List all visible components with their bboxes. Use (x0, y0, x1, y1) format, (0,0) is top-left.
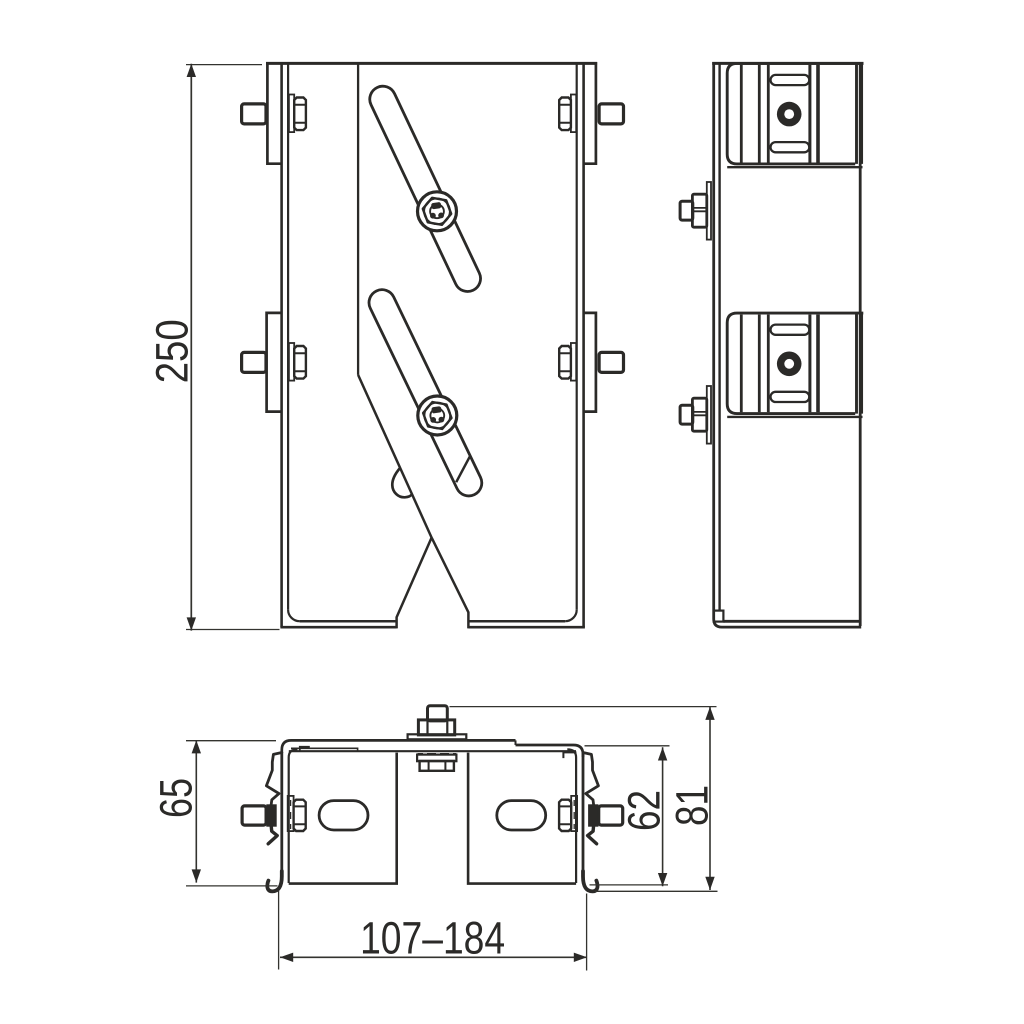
svg-text:107–184: 107–184 (360, 913, 505, 964)
svg-text:250: 250 (147, 319, 198, 383)
svg-text:81: 81 (667, 785, 718, 826)
svg-text:62: 62 (618, 790, 669, 831)
svg-text:65: 65 (151, 778, 202, 818)
